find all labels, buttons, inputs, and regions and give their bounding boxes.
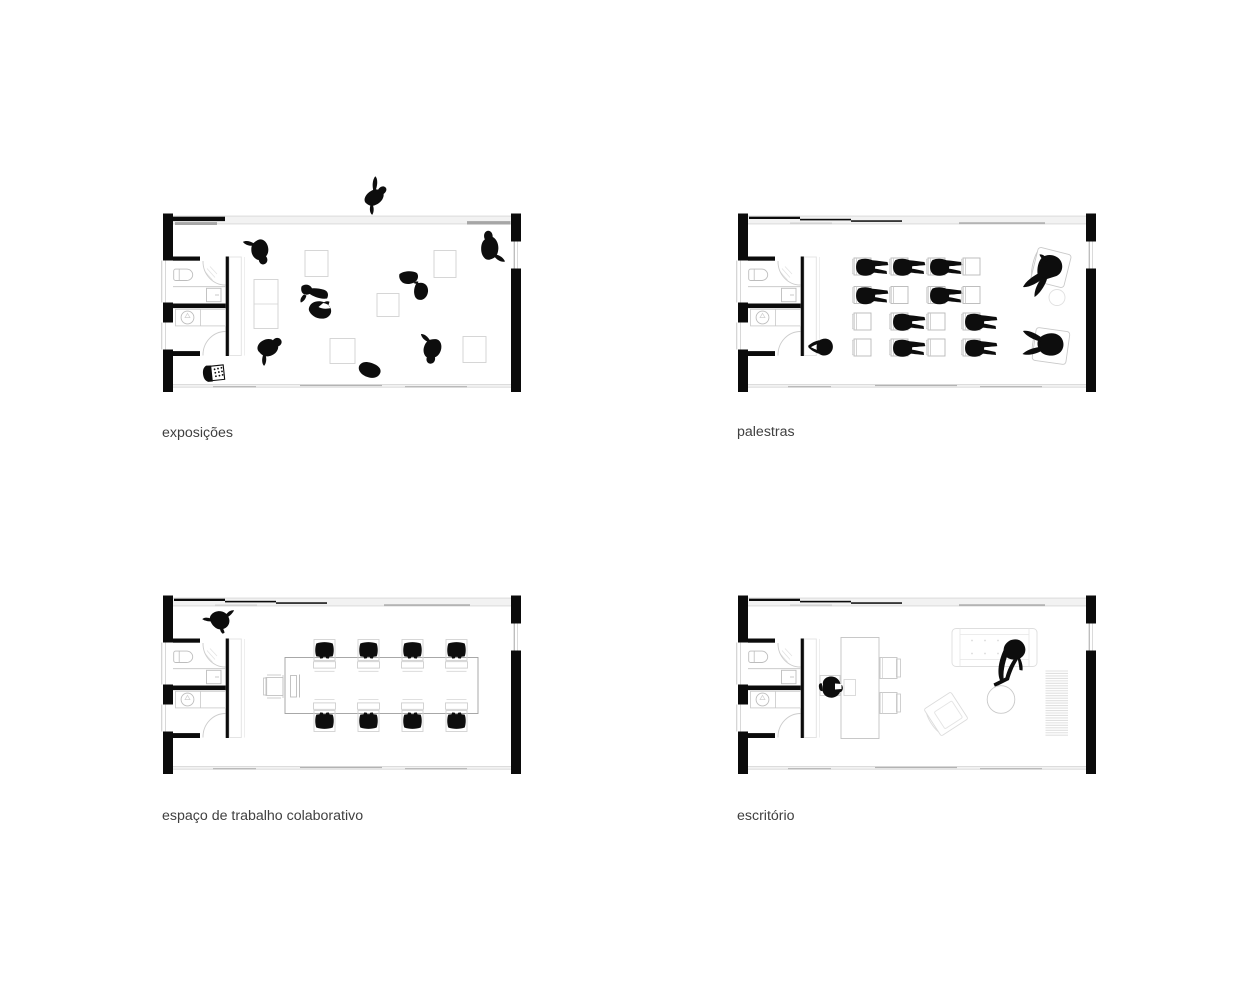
svg-text:palestras: palestras [737,424,795,440]
svg-text:exposições: exposições [162,425,233,441]
svg-text:espaço de trabalho colaborativ: espaço de trabalho colaborativo [162,808,363,824]
svg-text:escritório: escritório [737,808,795,824]
